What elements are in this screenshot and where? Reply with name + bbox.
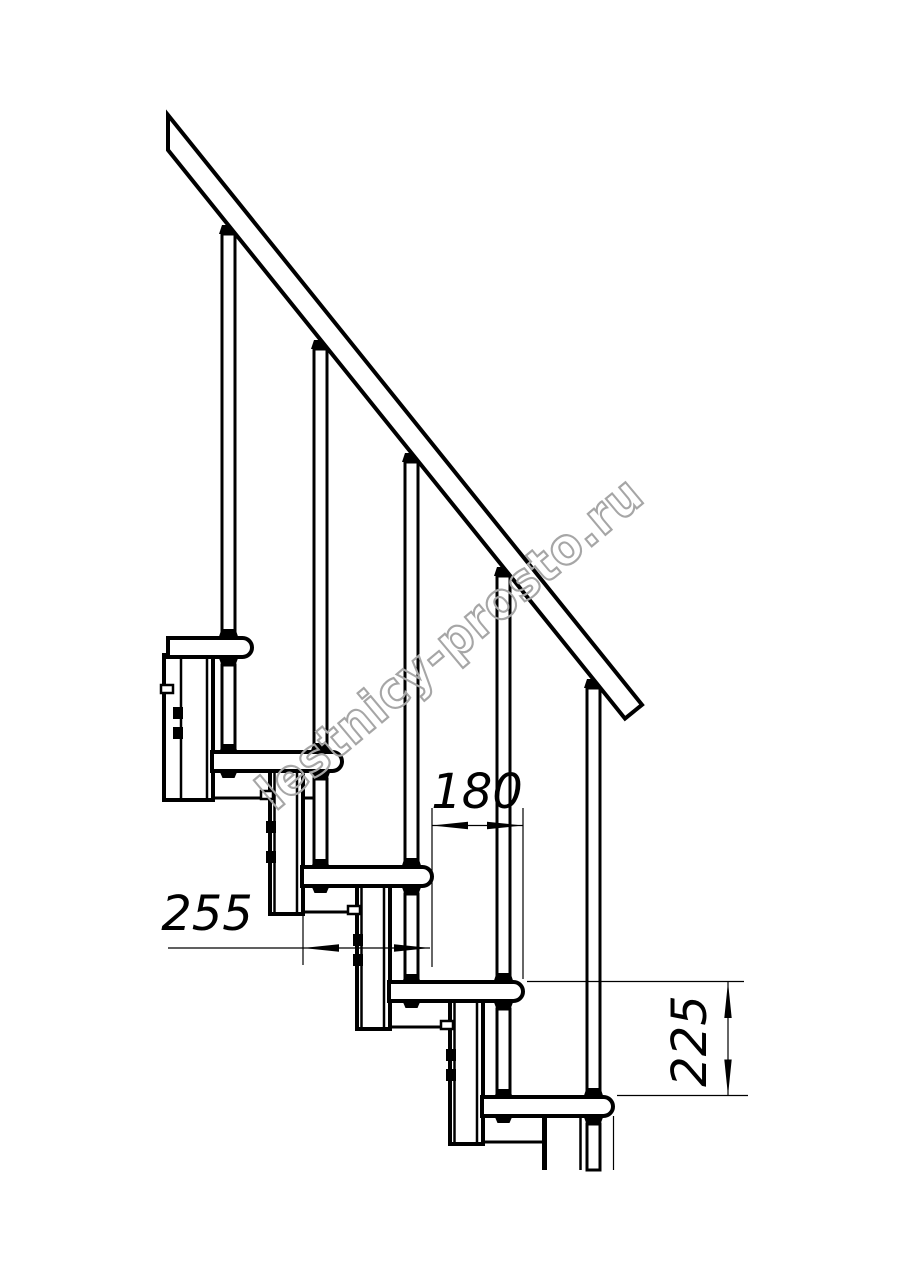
tread-3 — [302, 867, 432, 886]
under-tread-nut — [402, 886, 422, 894]
staircase-drawing-page: 180 255 225 lestnicy-prosto.ru — [0, 0, 914, 1280]
bolt — [446, 1049, 456, 1061]
bolt — [446, 1069, 456, 1081]
tread-foot — [402, 858, 422, 867]
under-tread-nut — [584, 1116, 604, 1124]
tread-5 — [482, 1097, 613, 1116]
under-tread-nut — [494, 1001, 514, 1009]
next-tread-collar — [312, 859, 330, 867]
baluster-rod-lower — [222, 665, 235, 752]
terminal-nut — [495, 1116, 513, 1123]
connector-tab — [441, 1021, 453, 1029]
terminal-nut — [312, 886, 330, 893]
terminal-nut — [403, 1001, 421, 1008]
dimension-value-180: 180 — [431, 764, 523, 820]
baluster-rod-lower — [497, 1009, 510, 1097]
dimension-value-255: 255 — [161, 886, 253, 942]
connector-tab — [161, 685, 173, 693]
baluster-rod-upper — [314, 349, 327, 752]
staircase-elevation-drawing: 180 255 225 lestnicy-prosto.ru — [0, 0, 914, 1280]
support-column-body — [164, 655, 213, 800]
baluster-rod-lower — [405, 894, 418, 982]
bolt — [266, 851, 276, 863]
tread-1 — [168, 638, 252, 657]
bolt — [173, 707, 183, 719]
tread-foot — [584, 1088, 604, 1097]
tread-foot — [219, 629, 239, 638]
baluster-4 — [497, 576, 510, 1097]
bolt — [266, 821, 276, 833]
baluster-3 — [405, 462, 418, 982]
dimension-value-225: 225 — [662, 995, 718, 1087]
next-tread-collar — [403, 974, 421, 982]
next-tread-collar — [495, 1089, 513, 1097]
terminal-nut — [220, 771, 238, 778]
tread-foot — [494, 973, 514, 982]
bolt — [353, 934, 363, 946]
bolt — [173, 727, 183, 739]
baluster-rod-upper — [222, 234, 235, 638]
under-tread-nut — [219, 657, 239, 665]
bolt — [353, 954, 363, 966]
next-tread-collar — [220, 744, 238, 752]
baluster-rod-lower — [587, 1124, 600, 1170]
tread-4 — [389, 982, 523, 1001]
baluster-1 — [222, 234, 235, 752]
connector-tab — [348, 906, 360, 914]
baluster-rod-upper — [587, 688, 600, 1097]
